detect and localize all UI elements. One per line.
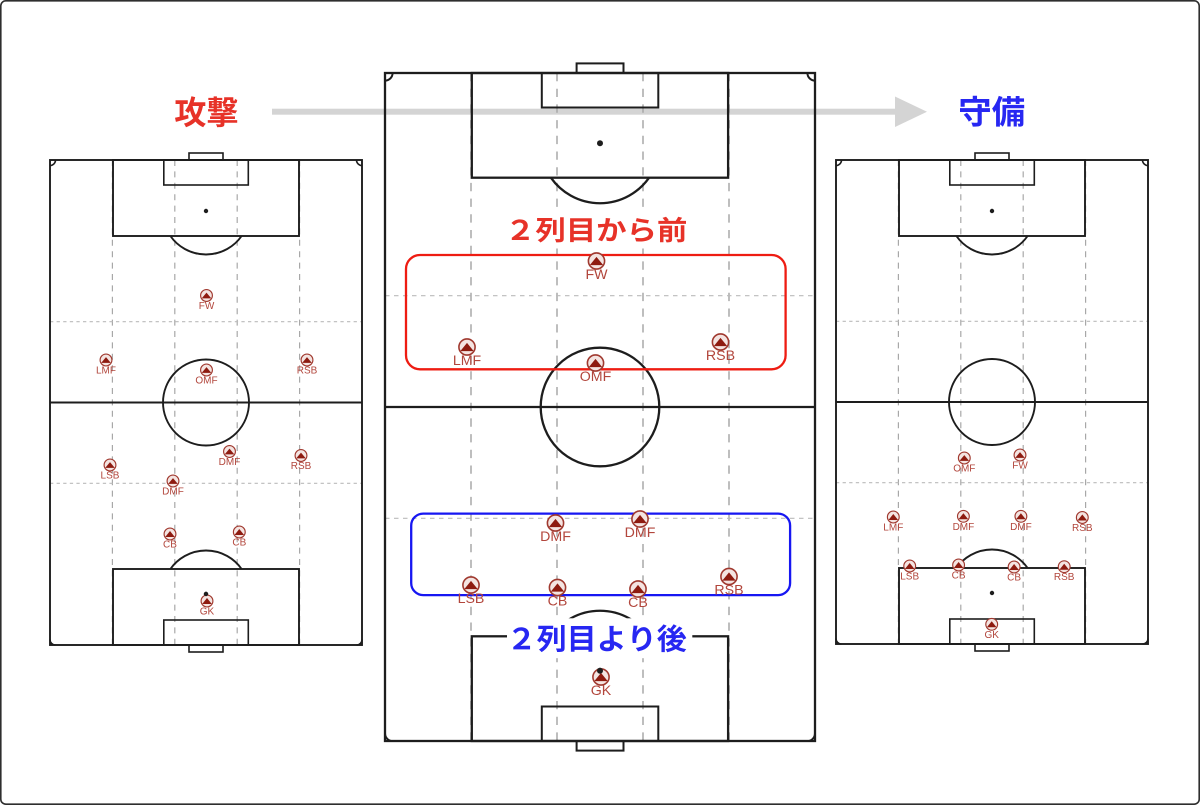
svg-text:CB: CB xyxy=(1007,573,1021,584)
svg-text:LSB: LSB xyxy=(900,572,919,583)
svg-text:RSB: RSB xyxy=(706,348,735,364)
svg-text:GK: GK xyxy=(591,683,612,699)
svg-text:LMF: LMF xyxy=(96,366,116,377)
svg-text:LMF: LMF xyxy=(453,353,482,369)
svg-text:DMF: DMF xyxy=(219,457,241,468)
svg-text:OMF: OMF xyxy=(580,369,612,385)
svg-text:CB: CB xyxy=(232,538,246,549)
svg-text:CB: CB xyxy=(628,595,648,611)
svg-text:LSB: LSB xyxy=(458,591,485,607)
svg-text:RSB: RSB xyxy=(1072,523,1093,534)
svg-text:DMF: DMF xyxy=(953,522,975,533)
svg-text:CB: CB xyxy=(163,540,177,551)
svg-text:RSB: RSB xyxy=(714,583,743,599)
svg-text:GK: GK xyxy=(200,607,215,618)
svg-text:OMF: OMF xyxy=(953,464,975,475)
svg-text:LSB: LSB xyxy=(101,471,120,482)
svg-text:CB: CB xyxy=(952,571,966,582)
svg-text:LMF: LMF xyxy=(883,523,903,534)
svg-text:FW: FW xyxy=(199,301,215,312)
svg-text:RSB: RSB xyxy=(297,366,318,377)
svg-text:RSB: RSB xyxy=(1054,572,1075,583)
svg-text:GK: GK xyxy=(984,630,999,641)
svg-text:OMF: OMF xyxy=(195,376,217,387)
svg-text:FW: FW xyxy=(585,267,608,283)
svg-text:DMF: DMF xyxy=(162,487,184,498)
svg-text:RSB: RSB xyxy=(291,461,312,472)
svg-text:CB: CB xyxy=(548,594,568,610)
svg-text:DMF: DMF xyxy=(1010,522,1032,533)
svg-text:FW: FW xyxy=(1012,461,1028,472)
svg-text:DMF: DMF xyxy=(540,529,571,545)
svg-text:DMF: DMF xyxy=(625,525,656,541)
